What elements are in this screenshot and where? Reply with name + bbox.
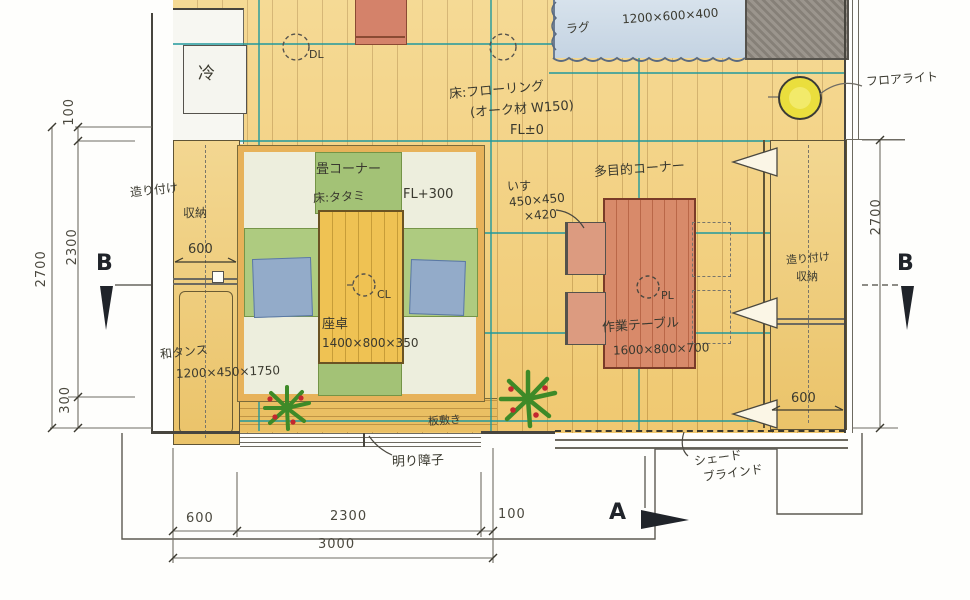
section-a-label: A (609, 501, 626, 524)
section-b-right-label: B (897, 252, 914, 275)
floor-plan: 冷 (0, 0, 970, 600)
section-b-left-label: B (96, 252, 113, 275)
av-cabinet (745, 0, 849, 60)
red-cabinet-base-line (355, 36, 405, 38)
shoji-track-3 (240, 442, 481, 443)
dim-bottom-100: 100 (498, 508, 526, 522)
window-sill-2 (555, 447, 848, 449)
section-b-left-arrow (100, 286, 113, 330)
storage-left-label-1: 造り付け (129, 182, 178, 200)
downlight-label: DL (309, 49, 324, 61)
shoji-track-4 (240, 446, 481, 447)
grid-line-h2 (549, 72, 845, 74)
shoji-track-2 (240, 437, 481, 438)
storage-right-label-2: 収納 (796, 271, 818, 283)
tatami-floor: 床:タタミ (313, 190, 366, 205)
floor-note-3: FL±0 (510, 124, 544, 138)
grid-line-v2 (490, 0, 492, 431)
shoji-label: 明り障子 (392, 454, 444, 469)
section-b-right-arrow (901, 286, 914, 330)
shade-blind-line (555, 430, 845, 432)
wall-right-inner (852, 0, 853, 433)
wall-right-ledge (845, 139, 905, 140)
cushion-left (252, 257, 313, 318)
grid-line-h3 (173, 140, 845, 142)
wall-bottom-mid (481, 431, 555, 434)
shoji-track-1 (240, 433, 481, 434)
shade-leader (682, 432, 688, 456)
tansu-outline (179, 291, 233, 434)
chair-4-dashed (692, 290, 731, 344)
storage-left-label-2: 収納 (183, 207, 207, 220)
dim-left-2300: 2300 (66, 222, 80, 272)
storage-right-depth: 600 (791, 392, 816, 406)
pendant-light-label: PL (661, 290, 674, 302)
refrigerator (183, 45, 247, 114)
chair-2 (565, 292, 606, 345)
chair-3-dashed (692, 222, 731, 277)
chair-dims-2: ×420 (524, 208, 558, 223)
zataku-dims: 1400×800×350 (322, 337, 418, 350)
chair-1 (565, 222, 606, 275)
dim-bottom-2300: 2300 (330, 510, 367, 524)
storage-right-centerline (808, 145, 809, 423)
zataku-label: 座卓 (322, 318, 348, 332)
tatami-level: FL+300 (403, 188, 453, 202)
red-cabinet (355, 0, 407, 45)
storage-left-divider (173, 278, 238, 280)
section-a-arrow (641, 510, 689, 529)
dim-left-300: 300 (59, 379, 73, 421)
storage-right-divider2 (770, 323, 845, 325)
storage-right-face (763, 140, 765, 428)
wall-right-top (858, 0, 859, 140)
terrace-outline (122, 433, 862, 539)
deck-label: 板敷き (428, 414, 462, 428)
dim-right-lines (852, 140, 905, 428)
wall-bottom-left (151, 431, 240, 434)
ceiling-light-label: CL (377, 289, 391, 301)
dim-left-100: 100 (63, 94, 77, 130)
shoji-meeting-stile (363, 433, 365, 447)
tatami-title: 畳コーナー (316, 163, 381, 177)
storage-left-divider2 (173, 283, 238, 285)
storage-left-handle (212, 271, 224, 283)
shade-label-2: ブラインド (702, 463, 763, 484)
dim-right-ticks (876, 136, 884, 432)
rug-label: ラグ (565, 21, 590, 36)
wall-left (151, 13, 153, 433)
chair-label: いす (507, 180, 531, 193)
dim-bottom-3000: 3000 (318, 538, 355, 552)
refrigerator-label: 冷 (198, 66, 215, 84)
dim-bottom-600: 600 (186, 512, 214, 526)
storage-left-depth: 600 (188, 243, 213, 257)
cushion-right (409, 259, 466, 316)
storage-right-divider (770, 318, 845, 320)
wall-right (844, 0, 846, 433)
tatami-mat-bottom (318, 360, 402, 396)
floor-light-label: フロアライト (866, 71, 939, 89)
dim-right-2700: 2700 (870, 190, 884, 244)
grid-line-h6 (173, 420, 845, 422)
window-sill-1 (555, 439, 848, 441)
dim-left-2700: 2700 (35, 242, 49, 296)
